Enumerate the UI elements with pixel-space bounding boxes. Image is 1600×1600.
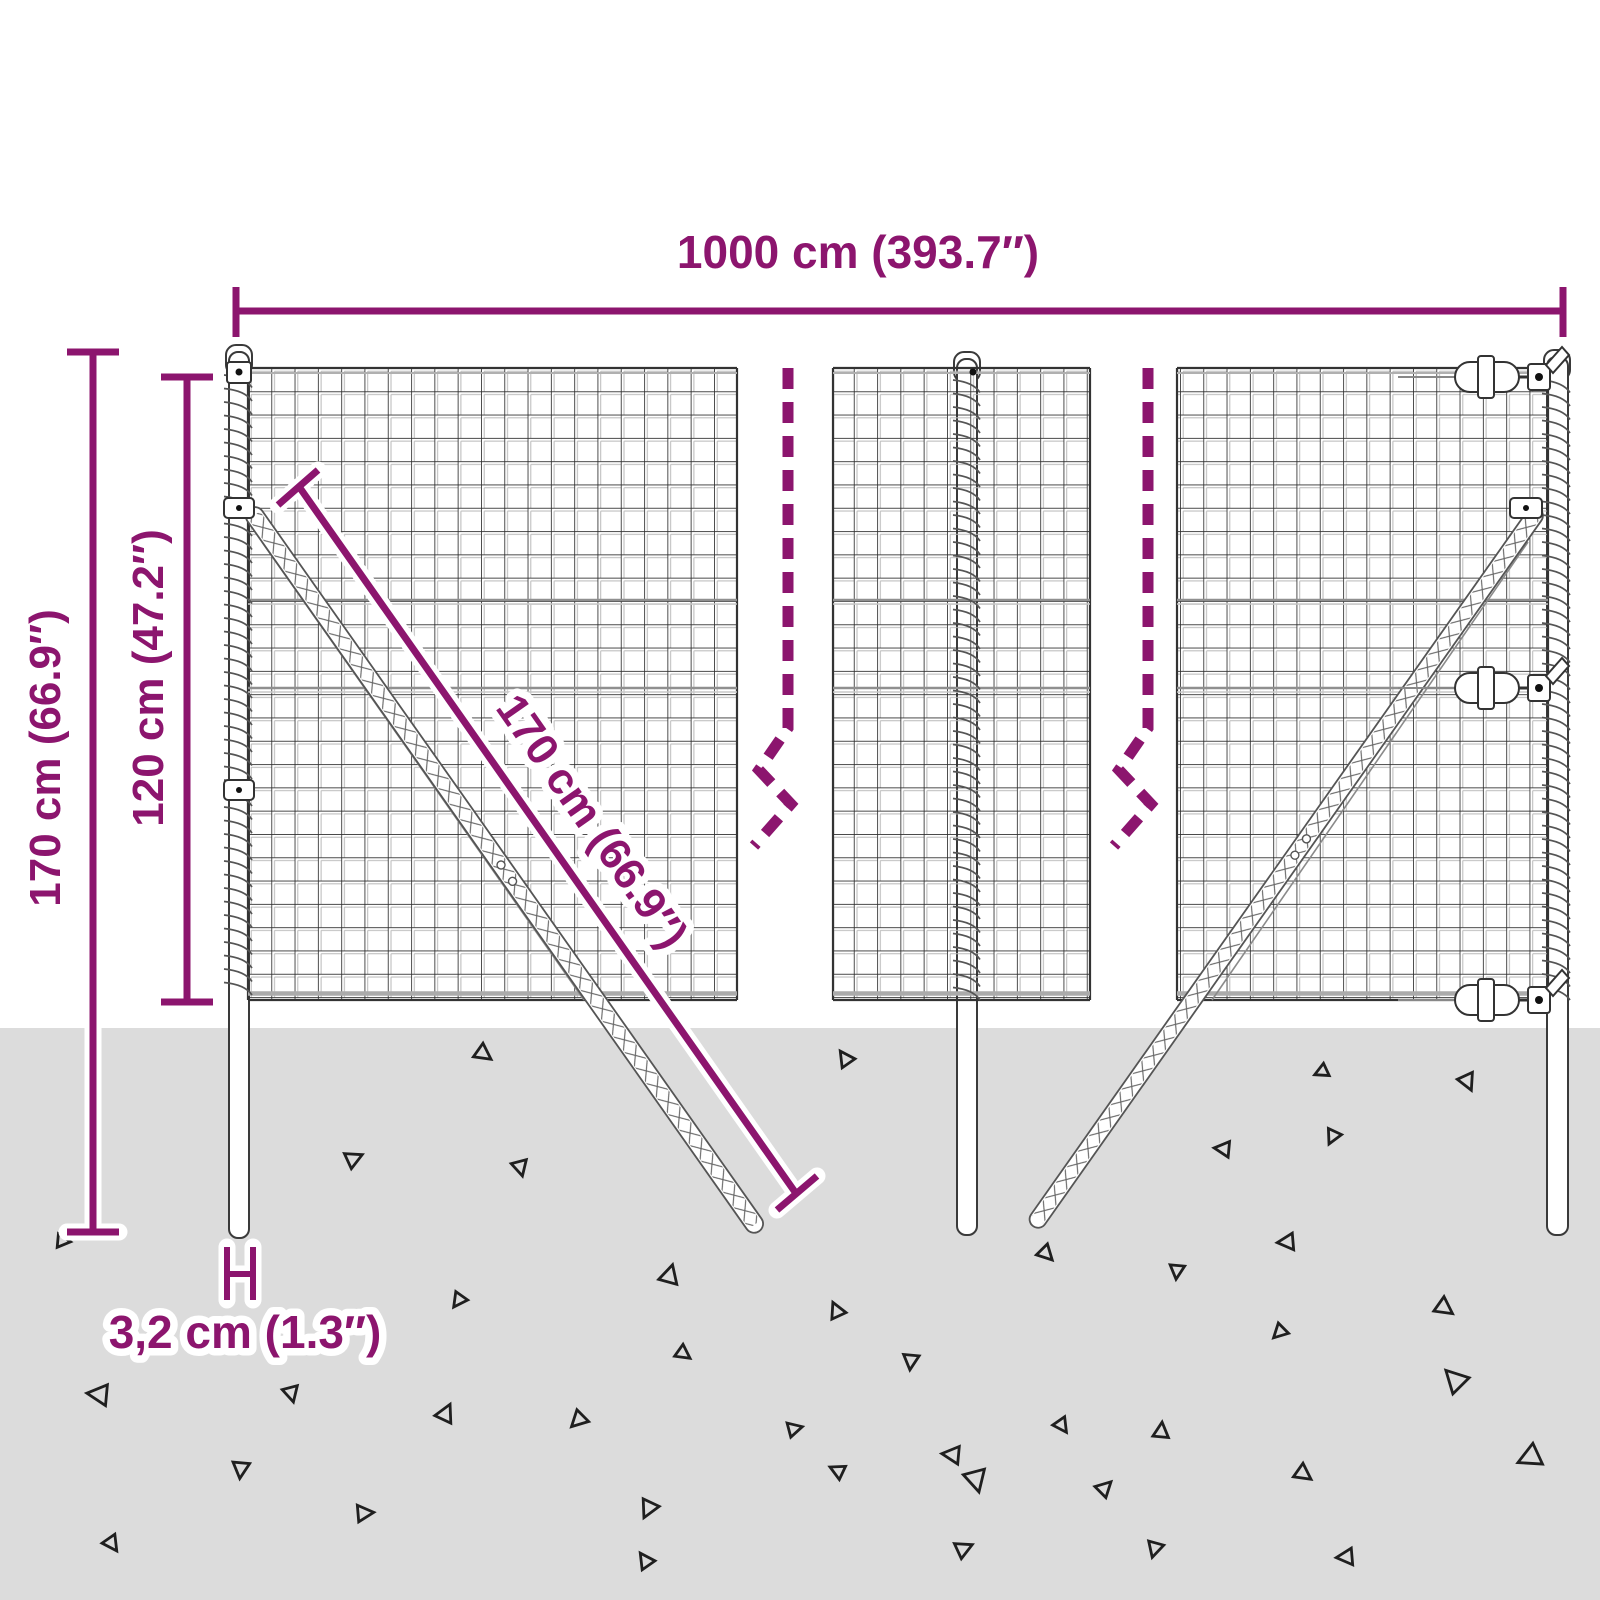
dim-post-width-label: 3,2 cm (1.3″) (109, 1306, 382, 1358)
turnbuckle-bolt (1478, 667, 1494, 709)
bolt (236, 505, 242, 511)
bolt (1523, 505, 1529, 511)
bolt (236, 787, 242, 793)
turnbuckle-bolt (1478, 979, 1494, 1021)
fence-dimension-diagram: 1000 cm (393.7″) 170 cm (66.9″) 120 cm (… (0, 0, 1600, 1600)
break-line-left (754, 368, 791, 846)
bolt (236, 369, 243, 376)
bolt (1535, 996, 1543, 1004)
dim-mesh-height-label: 120 cm (47.2″) (124, 529, 173, 826)
bolt (970, 369, 977, 376)
bolt (1535, 684, 1543, 692)
break-line-right (1114, 368, 1151, 846)
turnbuckle-bolt (1478, 356, 1494, 398)
dim-width-label: 1000 cm (393.7″) (677, 226, 1039, 278)
bolt (1535, 373, 1543, 381)
dim-total-height-label: 170 cm (66.9″) (21, 609, 70, 906)
dim-width (236, 287, 1563, 337)
